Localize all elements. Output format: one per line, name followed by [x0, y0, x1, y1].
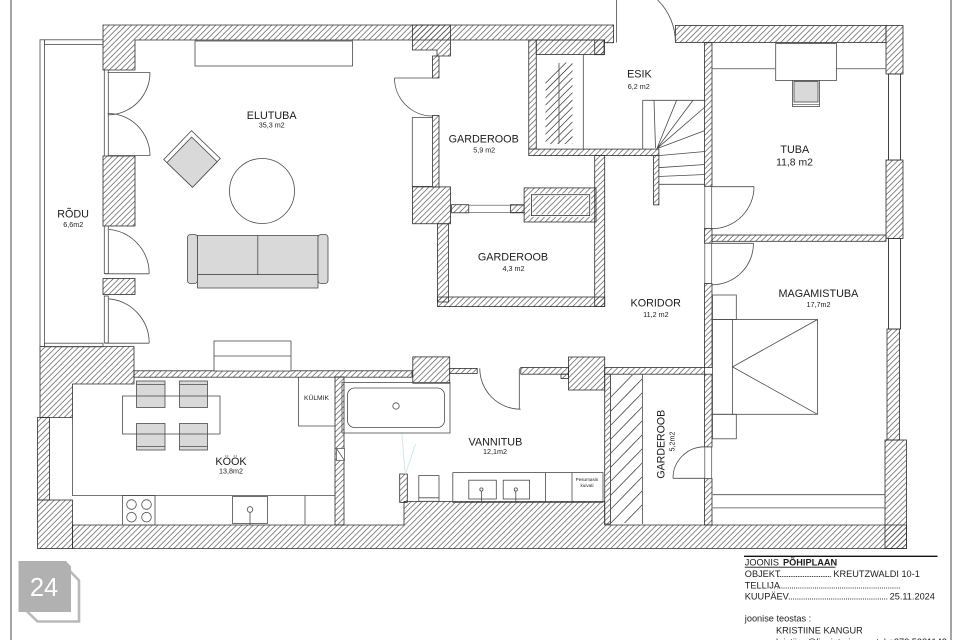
svg-text:4,3 m2: 4,3 m2	[503, 264, 525, 273]
svg-text:GARDEROOB: GARDEROOB	[449, 134, 519, 146]
svg-text:12,1m2: 12,1m2	[483, 447, 507, 456]
svg-text:13,8m2: 13,8m2	[219, 467, 243, 476]
svg-text:5,9 m2: 5,9 m2	[473, 146, 495, 155]
svg-text:25.11.2024: 25.11.2024	[890, 592, 935, 602]
svg-text:6,6m2: 6,6m2	[63, 220, 83, 229]
svg-text:KORIDOR: KORIDOR	[631, 297, 682, 309]
svg-text:OBJEKT: OBJEKT	[745, 569, 781, 579]
svg-text:24: 24	[30, 574, 58, 602]
svg-text:11,8 m2: 11,8 m2	[776, 158, 813, 169]
svg-text:GARDEROOB: GARDEROOB	[478, 252, 548, 264]
svg-text:Pesumasin: Pesumasin	[576, 477, 599, 482]
svg-text:5,2m2: 5,2m2	[667, 432, 676, 452]
svg-text:KÜLMIK: KÜLMIK	[304, 394, 329, 402]
svg-text:PÕHIPLAAN: PÕHIPLAAN	[783, 557, 837, 567]
svg-text:6,2 m2: 6,2 m2	[628, 82, 650, 91]
svg-text:17,7m2: 17,7m2	[807, 300, 831, 309]
svg-text:35,3 m2: 35,3 m2	[259, 121, 285, 130]
svg-text:MAGAMISTUBA: MAGAMISTUBA	[779, 288, 860, 300]
svg-text:RÕDU: RÕDU	[57, 208, 89, 221]
svg-text:..............................: ........................................…	[777, 580, 901, 590]
svg-text:..............................: ..............................	[778, 569, 832, 579]
svg-text:TELLIJA: TELLIJA	[745, 580, 781, 590]
svg-text:KREUTZWALDI 10-1: KREUTZWALDI 10-1	[833, 569, 919, 579]
svg-text:11,2 m2: 11,2 m2	[643, 310, 668, 319]
svg-text:TUBA: TUBA	[780, 144, 810, 156]
svg-text:joonise teostas :: joonise teostas :	[744, 614, 811, 624]
svg-text:JOONIS: JOONIS	[745, 557, 779, 567]
svg-text:..............................: ........................................…	[788, 592, 888, 602]
svg-text:kuivati: kuivati	[580, 483, 593, 488]
svg-text:KRISTIINE KANGUR: KRISTIINE KANGUR	[776, 625, 863, 635]
svg-text:GARDEROOB: GARDEROOB	[656, 410, 668, 479]
svg-text:KUUPÄEV: KUUPÄEV	[745, 592, 790, 602]
svg-text:ESIK: ESIK	[627, 69, 652, 81]
